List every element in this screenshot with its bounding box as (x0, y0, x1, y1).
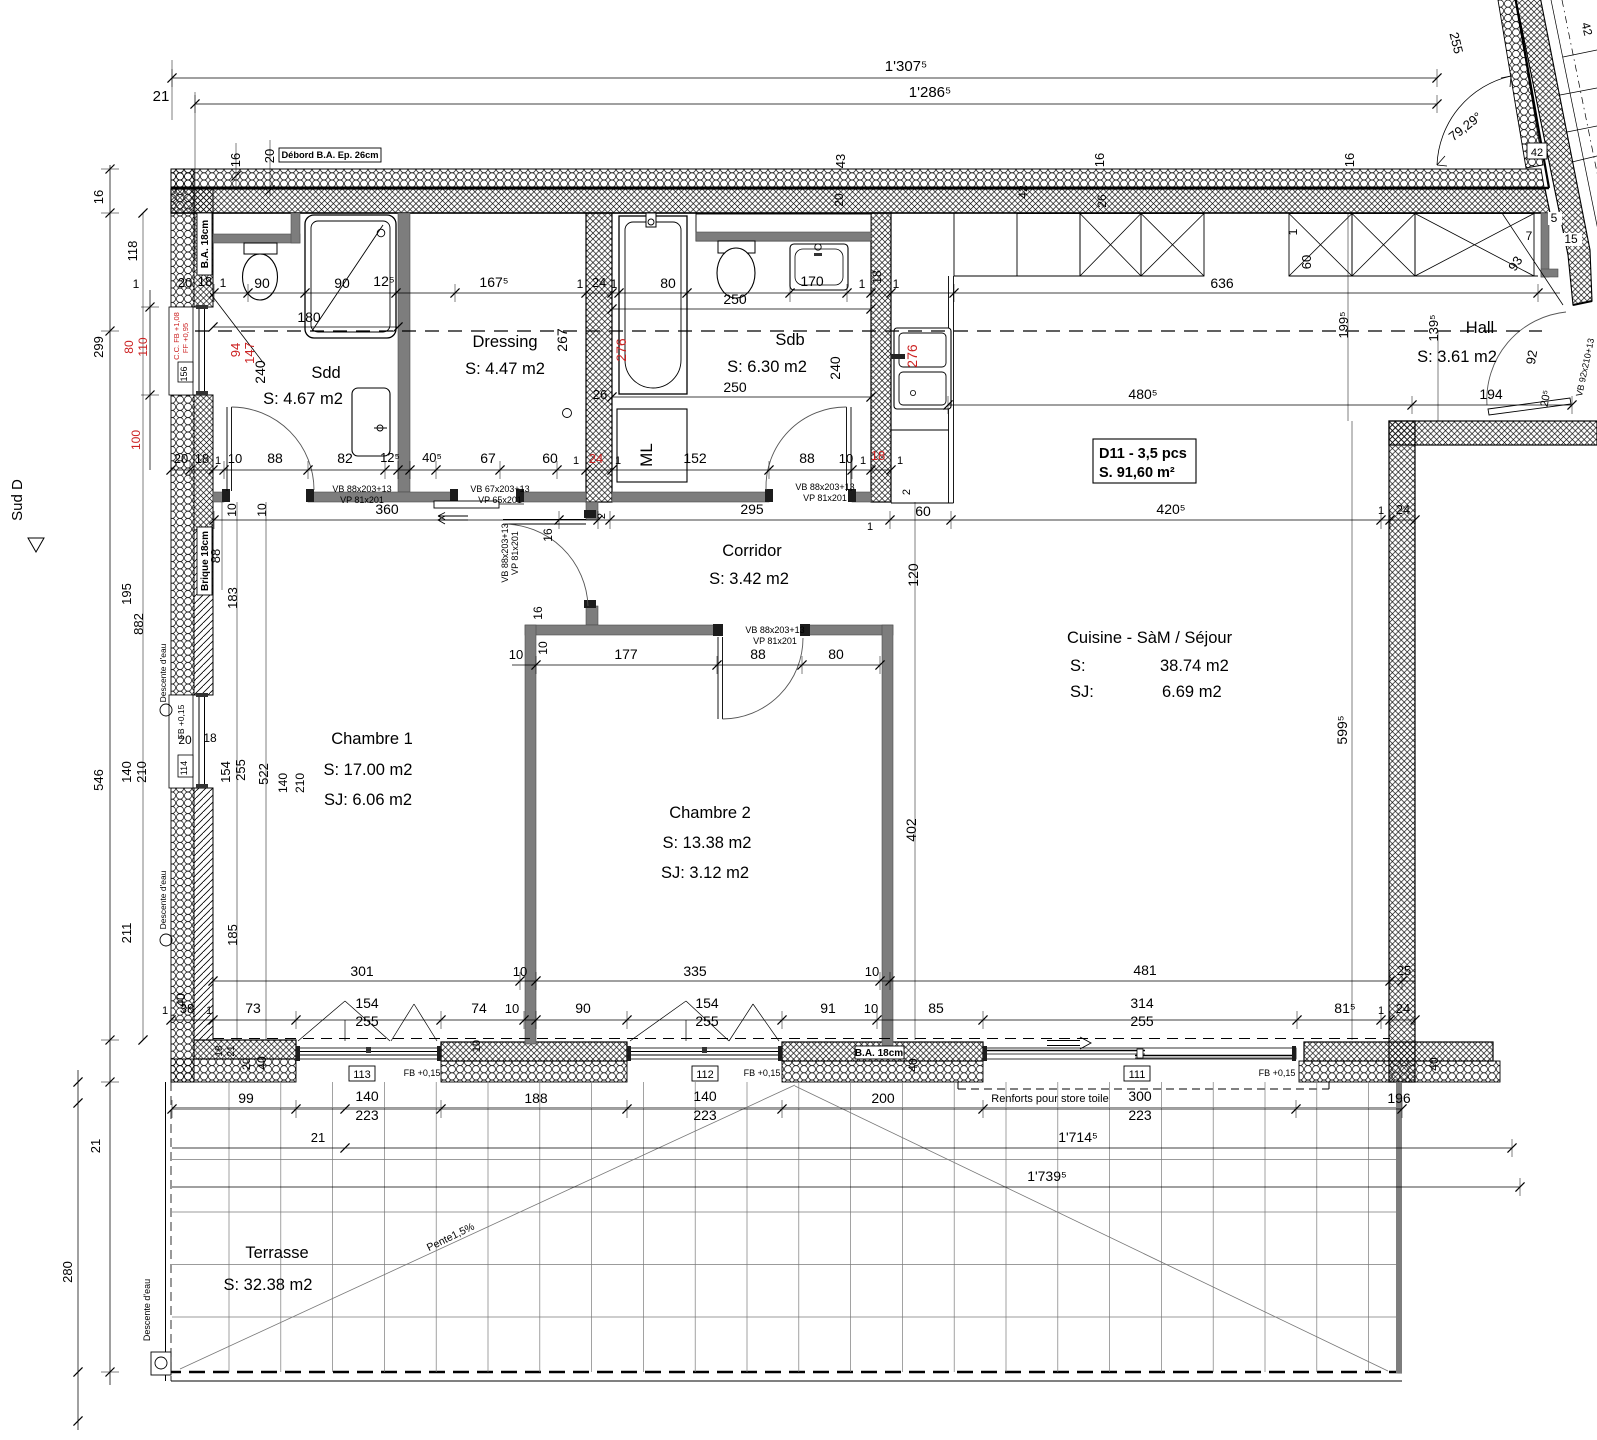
svg-text:255: 255 (1130, 1013, 1154, 1029)
svg-text:211: 211 (119, 923, 134, 944)
svg-text:240: 240 (827, 356, 843, 380)
svg-text:21: 21 (88, 1139, 103, 1153)
svg-text:16: 16 (531, 606, 545, 620)
svg-text:S. 91,60 m²: S. 91,60 m² (1099, 465, 1175, 481)
svg-text:Renforts pour store toile: Renforts pour store toile (991, 1093, 1108, 1105)
svg-text:73: 73 (245, 1000, 261, 1016)
svg-text:VB 88x203+13: VB 88x203+13 (745, 625, 804, 635)
svg-text:91: 91 (820, 1000, 836, 1016)
svg-text:110: 110 (136, 337, 150, 356)
svg-text:80: 80 (122, 340, 136, 354)
svg-text:90: 90 (254, 275, 270, 291)
svg-text:Terrasse: Terrasse (245, 1244, 308, 1262)
svg-text:FB +0,15: FB +0,15 (744, 1068, 781, 1078)
svg-text:1: 1 (133, 277, 140, 291)
svg-text:1'739⁵: 1'739⁵ (1027, 1168, 1067, 1184)
svg-text:1'286⁵: 1'286⁵ (909, 84, 951, 101)
svg-text:10: 10 (513, 964, 527, 979)
svg-text:223: 223 (693, 1107, 717, 1123)
svg-text:183: 183 (225, 587, 240, 609)
svg-text:250: 250 (723, 291, 747, 307)
svg-text:67: 67 (480, 450, 496, 466)
svg-text:210: 210 (134, 761, 149, 783)
svg-text:SJ: 3.12 m2: SJ: 3.12 m2 (661, 864, 749, 882)
svg-text:10: 10 (228, 451, 242, 466)
svg-text:882: 882 (131, 613, 146, 635)
svg-text:90: 90 (575, 1000, 591, 1016)
svg-text:40: 40 (906, 1058, 920, 1072)
svg-text:1: 1 (860, 455, 866, 467)
svg-text:Corridor: Corridor (722, 542, 782, 560)
svg-text:167⁵: 167⁵ (479, 274, 508, 290)
svg-text:118: 118 (125, 241, 140, 262)
svg-text:88: 88 (750, 646, 766, 662)
svg-text:1: 1 (615, 455, 621, 467)
svg-text:402: 402 (903, 818, 919, 842)
svg-text:1: 1 (1378, 505, 1384, 517)
svg-text:81⁵: 81⁵ (1334, 1000, 1355, 1016)
svg-text:114: 114 (179, 761, 189, 775)
svg-text:1: 1 (206, 1005, 212, 1017)
svg-text:147: 147 (242, 342, 257, 364)
svg-text:10: 10 (505, 1001, 519, 1016)
svg-text:20: 20 (262, 149, 277, 163)
svg-text:599⁵: 599⁵ (1334, 715, 1350, 744)
svg-text:20: 20 (241, 1058, 253, 1070)
svg-text:185: 185 (225, 924, 240, 946)
svg-text:139⁵: 139⁵ (1426, 314, 1441, 341)
svg-text:200: 200 (871, 1090, 895, 1106)
svg-text:1: 1 (859, 277, 866, 291)
svg-text:154: 154 (695, 995, 719, 1011)
svg-text:82: 82 (337, 450, 353, 466)
svg-text:Cuisine - SàM / Séjour: Cuisine - SàM / Séjour (1067, 629, 1233, 647)
svg-text:18: 18 (871, 448, 885, 463)
svg-text:S: 3.61 m2: S: 3.61 m2 (1417, 348, 1497, 366)
svg-text:2: 2 (596, 513, 608, 519)
svg-text:480⁵: 480⁵ (1128, 386, 1157, 402)
svg-text:FF +0,95: FF +0,95 (181, 323, 190, 353)
svg-text:140: 140 (119, 761, 134, 783)
svg-text:199⁵: 199⁵ (1336, 311, 1351, 338)
svg-text:18: 18 (195, 451, 209, 466)
svg-text:300: 300 (1128, 1088, 1152, 1104)
svg-text:16: 16 (1342, 153, 1357, 167)
svg-text:40: 40 (174, 993, 188, 1007)
svg-text:Hall: Hall (1466, 319, 1494, 337)
svg-text:S: 4.67 m2: S: 4.67 m2 (263, 390, 343, 408)
svg-text:360: 360 (375, 501, 399, 517)
svg-text:295: 295 (740, 501, 764, 517)
svg-text:VP 65x201: VP 65x201 (478, 495, 522, 505)
svg-text:255: 255 (695, 1013, 719, 1029)
svg-text:16: 16 (91, 190, 106, 204)
svg-text:18: 18 (214, 1045, 225, 1057)
svg-text:VP 81x201: VP 81x201 (753, 636, 797, 646)
svg-text:196: 196 (1387, 1090, 1411, 1106)
svg-text:42: 42 (1531, 147, 1543, 159)
svg-text:1: 1 (893, 277, 900, 291)
svg-text:5: 5 (1551, 211, 1558, 225)
svg-text:S: 6.30 m2: S: 6.30 m2 (727, 358, 807, 376)
svg-text:20: 20 (832, 193, 846, 207)
svg-text:18: 18 (203, 731, 217, 745)
svg-text:10: 10 (865, 964, 879, 979)
svg-text:1: 1 (220, 276, 227, 290)
svg-text:42: 42 (1016, 185, 1030, 199)
svg-text:1: 1 (162, 1005, 168, 1017)
svg-text:481: 481 (1133, 962, 1157, 978)
svg-text:Chambre 2: Chambre 2 (669, 804, 751, 822)
svg-text:154: 154 (218, 761, 233, 783)
svg-text:Descente d'eau: Descente d'eau (158, 870, 168, 929)
svg-text:1: 1 (867, 521, 873, 533)
svg-text:Sdd: Sdd (311, 364, 340, 382)
svg-text:18: 18 (198, 274, 212, 289)
svg-text:16: 16 (1092, 153, 1107, 167)
svg-text:152: 152 (683, 450, 707, 466)
svg-text:S: 17.00 m2: S: 17.00 m2 (324, 761, 413, 779)
svg-text:10: 10 (255, 503, 269, 517)
svg-text:VB 67x203+13: VB 67x203+13 (470, 484, 529, 494)
svg-text:154: 154 (355, 995, 379, 1011)
svg-text:112: 112 (696, 1069, 714, 1081)
svg-text:Débord B.A. Ep. 26cm: Débord B.A. Ep. 26cm (281, 150, 378, 160)
svg-text:250: 250 (723, 379, 747, 395)
svg-text:D11 - 3,5 pcs: D11 - 3,5 pcs (1099, 446, 1187, 462)
svg-text:140: 140 (276, 773, 290, 793)
svg-text:1'714⁵: 1'714⁵ (1058, 1129, 1098, 1145)
svg-text:299: 299 (91, 336, 106, 358)
svg-text:S: 32.38 m2: S: 32.38 m2 (224, 1276, 313, 1294)
svg-text:21: 21 (153, 88, 170, 105)
svg-text:40: 40 (1427, 1057, 1441, 1071)
svg-text:1'307⁵: 1'307⁵ (885, 58, 927, 75)
svg-text:Descente d'eau: Descente d'eau (158, 643, 168, 702)
svg-text:6.69 m2: 6.69 m2 (1162, 683, 1222, 701)
svg-text:195: 195 (119, 583, 134, 605)
svg-text:10: 10 (509, 647, 523, 662)
svg-text:15: 15 (1564, 232, 1578, 246)
svg-text:420⁵: 420⁵ (1156, 501, 1185, 517)
svg-text:C.C. FB +1,08: C.C. FB +1,08 (172, 312, 181, 360)
svg-text:24: 24 (1396, 1001, 1410, 1016)
svg-text:SJ: 6.06 m2: SJ: 6.06 m2 (324, 791, 412, 809)
svg-text:223: 223 (355, 1107, 379, 1123)
svg-text:1: 1 (577, 277, 584, 291)
svg-text:276: 276 (904, 344, 920, 368)
svg-text:88: 88 (799, 450, 815, 466)
svg-text:140: 140 (355, 1088, 379, 1104)
svg-text:113: 113 (353, 1069, 371, 1081)
svg-text:12⁵: 12⁵ (380, 450, 400, 465)
svg-text:177: 177 (614, 646, 638, 662)
svg-text:111: 111 (1129, 1069, 1146, 1081)
svg-text:40⁵: 40⁵ (422, 450, 442, 465)
svg-text:Chambre 1: Chambre 1 (331, 730, 413, 748)
svg-text:88: 88 (208, 549, 223, 563)
svg-text:Dressing: Dressing (472, 333, 537, 351)
svg-text:280: 280 (60, 1261, 75, 1283)
svg-text:301: 301 (350, 963, 374, 979)
svg-text:188: 188 (524, 1090, 548, 1106)
svg-text:94: 94 (228, 343, 243, 357)
svg-text:21: 21 (226, 1045, 237, 1057)
svg-text:Descente d'eau: Descente d'eau (142, 1279, 152, 1341)
svg-text:194: 194 (1479, 386, 1503, 402)
svg-text:1: 1 (897, 455, 903, 467)
svg-text:180: 180 (297, 309, 321, 325)
svg-text:VP 81x201: VP 81x201 (803, 493, 847, 503)
svg-text:S: 13.38 m2: S: 13.38 m2 (663, 834, 752, 852)
svg-text:90: 90 (334, 275, 350, 291)
svg-text:522: 522 (256, 763, 271, 785)
svg-text:74: 74 (471, 1000, 487, 1016)
svg-text:21: 21 (311, 1130, 325, 1145)
svg-text:546: 546 (91, 769, 106, 791)
svg-text:170: 170 (800, 273, 824, 289)
svg-text:10: 10 (536, 641, 550, 655)
svg-text:VP 81x201: VP 81x201 (510, 531, 520, 575)
svg-text:18: 18 (870, 270, 884, 284)
svg-text:92: 92 (1523, 349, 1540, 366)
svg-text:210: 210 (293, 773, 307, 793)
svg-text:255: 255 (233, 759, 248, 781)
svg-text:85: 85 (928, 1000, 944, 1016)
svg-text:16: 16 (541, 528, 555, 542)
svg-text:80: 80 (828, 646, 844, 662)
svg-text:1: 1 (1378, 1005, 1384, 1017)
svg-text:2: 2 (901, 489, 913, 495)
svg-text:7: 7 (1526, 229, 1533, 243)
svg-text:1: 1 (611, 277, 618, 291)
svg-text:10: 10 (839, 451, 853, 466)
svg-text:636: 636 (1210, 275, 1234, 291)
svg-text:43: 43 (833, 154, 848, 168)
svg-text:B.A. 18cm: B.A. 18cm (855, 1048, 903, 1059)
svg-text:140: 140 (693, 1088, 717, 1104)
svg-text:SJ:: SJ: (1070, 683, 1094, 701)
svg-text:1: 1 (1286, 228, 1300, 235)
svg-text:FB +0,15: FB +0,15 (1259, 1068, 1296, 1078)
svg-text:60: 60 (542, 450, 558, 466)
svg-text:10: 10 (864, 1001, 878, 1016)
svg-text:12⁵: 12⁵ (373, 273, 394, 289)
svg-text:60: 60 (915, 503, 931, 519)
svg-text:S: 3.42 m2: S: 3.42 m2 (709, 570, 789, 588)
svg-text:20: 20 (174, 451, 188, 466)
svg-text:FB +0,15: FB +0,15 (404, 1068, 441, 1078)
svg-text:Sdb: Sdb (775, 331, 804, 349)
svg-text:20: 20 (178, 275, 192, 290)
svg-text:VB 88x203+13: VB 88x203+13 (795, 482, 854, 492)
svg-text:VB 88x203+13: VB 88x203+13 (500, 523, 510, 582)
svg-text:S:: S: (1070, 657, 1086, 675)
svg-text:100: 100 (129, 430, 143, 450)
svg-text:26: 26 (1095, 194, 1109, 208)
svg-text:Sud D: Sud D (9, 479, 26, 521)
svg-text:24: 24 (1396, 502, 1410, 517)
svg-text:223: 223 (1128, 1107, 1152, 1123)
svg-text:20: 20 (178, 733, 192, 747)
svg-text:10: 10 (471, 1040, 483, 1052)
svg-text:99: 99 (238, 1090, 254, 1106)
svg-text:88: 88 (267, 450, 283, 466)
svg-text:60: 60 (1299, 255, 1314, 269)
svg-text:40: 40 (255, 1056, 269, 1070)
svg-text:80: 80 (660, 275, 676, 291)
svg-text:24: 24 (592, 275, 606, 290)
svg-text:314: 314 (1130, 995, 1154, 1011)
svg-text:24: 24 (589, 451, 603, 466)
svg-text:VB 88x203+13: VB 88x203+13 (332, 484, 391, 494)
svg-text:26: 26 (593, 387, 607, 402)
svg-text:B.A. 18cm: B.A. 18cm (200, 220, 211, 268)
svg-text:120: 120 (905, 563, 921, 587)
svg-text:276: 276 (613, 338, 629, 362)
svg-text:ML: ML (637, 443, 656, 467)
svg-text:267: 267 (554, 328, 570, 352)
svg-text:255: 255 (355, 1013, 379, 1029)
svg-text:S: 4.47 m2: S: 4.47 m2 (465, 360, 545, 378)
svg-text:25: 25 (1397, 963, 1411, 978)
svg-text:38.74 m2: 38.74 m2 (1160, 657, 1229, 675)
svg-text:1: 1 (573, 455, 579, 467)
svg-text:1: 1 (215, 455, 221, 467)
svg-text:16: 16 (228, 153, 243, 167)
svg-text:335: 335 (683, 963, 707, 979)
svg-text:156: 156 (179, 366, 189, 381)
